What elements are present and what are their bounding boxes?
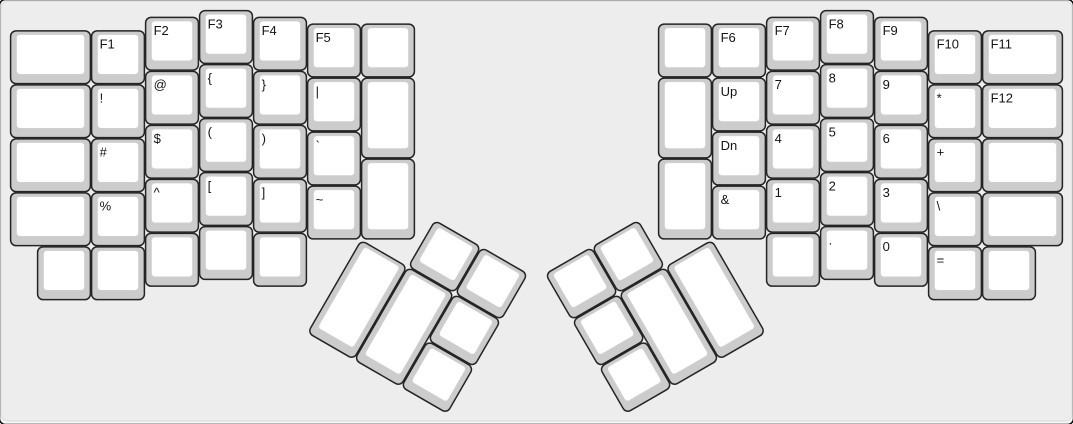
svg-text:{: { [208,70,213,85]
svg-text:3: 3 [883,185,890,200]
svg-text:Up: Up [721,84,738,99]
svg-text:`: ` [316,138,320,153]
svg-text:.: . [829,232,833,247]
svg-text:F7: F7 [775,23,790,38]
svg-text:\: \ [937,199,941,214]
svg-text:]: ] [262,185,266,200]
svg-text:2: 2 [829,178,836,193]
svg-text:%: % [100,199,112,214]
svg-text:Dn: Dn [721,138,738,153]
svg-text:F2: F2 [154,23,169,38]
svg-text:|: | [316,84,319,99]
svg-text:6: 6 [883,131,890,146]
svg-text:F6: F6 [721,30,736,45]
svg-text:F8: F8 [829,16,844,31]
svg-text:7: 7 [775,77,782,92]
svg-text:#: # [100,145,108,160]
svg-text:~: ~ [316,192,324,207]
svg-text:*: * [937,91,942,106]
svg-text:): ) [262,131,266,146]
svg-text:F3: F3 [208,16,223,31]
svg-text:$: $ [154,131,162,146]
svg-text:F10: F10 [937,37,959,52]
svg-text:F11: F11 [991,37,1012,52]
svg-text:5: 5 [829,124,836,139]
svg-text:(: ( [208,124,213,139]
svg-text:1: 1 [775,185,782,200]
svg-text:=: = [937,253,945,268]
svg-text:!: ! [100,91,104,106]
svg-text:F1: F1 [100,37,115,52]
svg-text:9: 9 [883,77,890,92]
svg-text:F9: F9 [883,23,898,38]
svg-text:+: + [937,145,945,160]
svg-text:0: 0 [883,239,890,254]
svg-text:&: & [721,192,730,207]
svg-text:^: ^ [154,185,161,200]
svg-text:F4: F4 [262,23,277,38]
svg-text:@: @ [154,77,167,92]
svg-text:8: 8 [829,70,836,85]
svg-text:F12: F12 [991,91,1013,106]
svg-text:[: [ [208,178,212,193]
svg-text:4: 4 [775,131,782,146]
svg-text:}: } [262,77,267,92]
svg-text:F5: F5 [316,30,331,45]
